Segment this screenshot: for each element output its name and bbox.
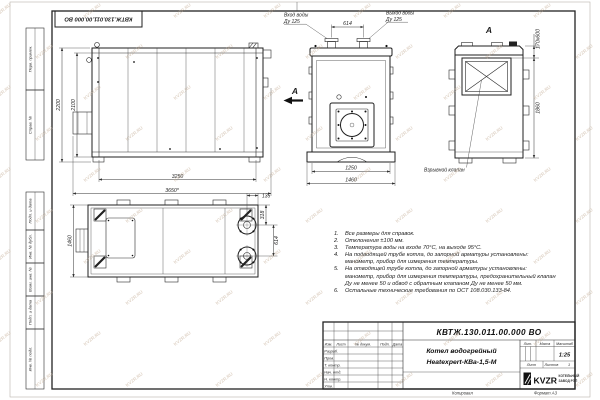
- tb-role-row: Утв.: [324, 384, 333, 388]
- explosion-valve: [462, 58, 511, 95]
- company-logo: KVZR КОТЕЛЬНЫЙ ЗАВОД РЭП: [524, 373, 580, 386]
- valve-callout-label: Взрывной клапан: [424, 167, 465, 174]
- smoke-duct: [73, 112, 92, 134]
- logo-caption-line2: ЗАВОД РЭП: [559, 379, 579, 383]
- logo-caption-line1: КОТЕЛЬНЫЙ: [559, 374, 580, 378]
- tb-scale-header: Масштаб: [556, 342, 574, 346]
- inlet-callout: Вход воды Ду 125: [283, 13, 327, 39]
- view-arrow-label: А: [291, 86, 298, 96]
- tb-header-list: Лист: [335, 342, 345, 346]
- view-a: А Взрывной клапан 170x600 1860: [424, 25, 542, 174]
- title-block: Изм. Лист № докум. Подп. Дата Разраб. Пр…: [323, 322, 580, 396]
- dim-view-a-height: 1860: [536, 102, 542, 114]
- tb-role-row: Разраб.: [324, 350, 338, 354]
- dim-front-width-inner: 1250: [345, 166, 357, 172]
- lifting-eyelet: [95, 42, 100, 47]
- top-opening: [106, 218, 135, 258]
- dim-side-length-outer: 3650*: [165, 188, 180, 194]
- front-view: 614 Вход воды Ду 125 Выход воды Ду 125 1…: [283, 11, 414, 187]
- dim-pipe-spacing: 614: [343, 21, 352, 27]
- svg-text:Выход воды: Выход воды: [386, 11, 414, 17]
- note-item: 1.Все размеры для справок.: [334, 231, 556, 238]
- view-direction-arrow: А: [284, 86, 304, 104]
- dim-front-width-outer: 1460: [345, 178, 357, 184]
- outlet-callout: Выход воды Ду 125: [369, 11, 414, 39]
- logo-text: KVZR: [534, 376, 558, 386]
- dim-top-flange-offset: 318: [260, 211, 266, 220]
- doc-number: КВТЖ.130.011.00.000 ВО: [437, 328, 542, 337]
- tb-header-doc: № докум.: [355, 342, 371, 346]
- footer-copied-by: Копировал: [452, 391, 473, 396]
- margin-col-label: Справ. №: [28, 115, 33, 134]
- tb-sheets-label: Листов: [544, 363, 559, 367]
- technical-notes: 1.Все размеры для справок. 2.Отклонения …: [334, 231, 556, 295]
- dim-side-length-inner: 3250: [172, 174, 184, 180]
- margin-col-label: Подп. и дата: [28, 299, 33, 325]
- tb-lit-header: Лит.: [523, 342, 532, 346]
- margin-col-label: Перв. примен.: [28, 46, 33, 73]
- tb-header-data: Дата: [392, 342, 402, 346]
- burner-plate: [330, 103, 374, 147]
- margin-col-label: Подп. и дата: [28, 198, 33, 224]
- drawing-sheet: Перв. примен. Справ. № Подп. и дата Инв.…: [0, 0, 600, 400]
- product-name-line1: Котел водогрейный: [426, 347, 497, 355]
- note-item: 4.На подводящей трубе котла, до запорной…: [334, 252, 556, 266]
- side-view: 2200 2100 3250 3650*: [56, 42, 271, 196]
- top-view: 1460 135 318 614: [68, 193, 280, 282]
- note-item: 2.Отклонения ±100 мм.: [334, 238, 556, 245]
- tb-header-podp: Подп.: [380, 342, 390, 346]
- tb-header-izm: Изм.: [325, 342, 333, 346]
- margin-columns: Перв. примен. Справ. № Подп. и дата Инв.…: [26, 28, 44, 389]
- tb-role-row: Нач. отд.: [324, 371, 341, 375]
- stamp-code: КВТЖ.130.011.00.000 ВО: [64, 16, 133, 22]
- margin-col-label: Инв. № подл.: [28, 347, 33, 372]
- tb-role-row: Т. контр.: [324, 364, 340, 368]
- tb-role-row: Н. контр.: [324, 378, 341, 382]
- footer-format: Формат А3: [534, 391, 558, 396]
- drawing-canvas: Перв. примен. Справ. № Подп. и дата Инв.…: [0, 0, 600, 400]
- svg-text:Вход воды: Вход воды: [284, 13, 309, 19]
- tb-mass-header: Масса: [540, 342, 551, 346]
- tb-role-row: Пров.: [324, 357, 334, 361]
- view-a-label: А: [485, 25, 492, 35]
- dim-valve-size: 170x600: [536, 29, 542, 49]
- dim-top-edge: 135: [262, 194, 271, 200]
- water-inlet-pipe: [325, 39, 338, 49]
- dim-side-height-outer: 2200: [56, 99, 62, 112]
- dim-side-height-inner: 2100: [71, 99, 77, 112]
- dim-top-flange-spacing: 614: [274, 236, 280, 245]
- top-stamp: КВТЖ.130.011.00.000 ВО: [55, 11, 142, 27]
- product-name-line2: Heatexpert-КВа-1,5-М: [427, 359, 497, 366]
- lifting-lug: [249, 43, 258, 48]
- margin-col-label: Взам. инв. №: [28, 266, 33, 291]
- tb-sheet-label: Лист: [526, 363, 536, 367]
- note-item: 6.Остальные технические требования по ОС…: [334, 288, 556, 295]
- margin-col-label: Инв. № дубл.: [28, 234, 33, 259]
- dim-top-depth: 1460: [68, 235, 74, 247]
- tb-sheets-value: 1: [568, 363, 570, 367]
- scale-value: 1:25: [559, 353, 571, 359]
- water-outlet-pipe: [357, 39, 370, 49]
- note-item: 5.На отводящей трубе котла, до запорной …: [334, 266, 556, 287]
